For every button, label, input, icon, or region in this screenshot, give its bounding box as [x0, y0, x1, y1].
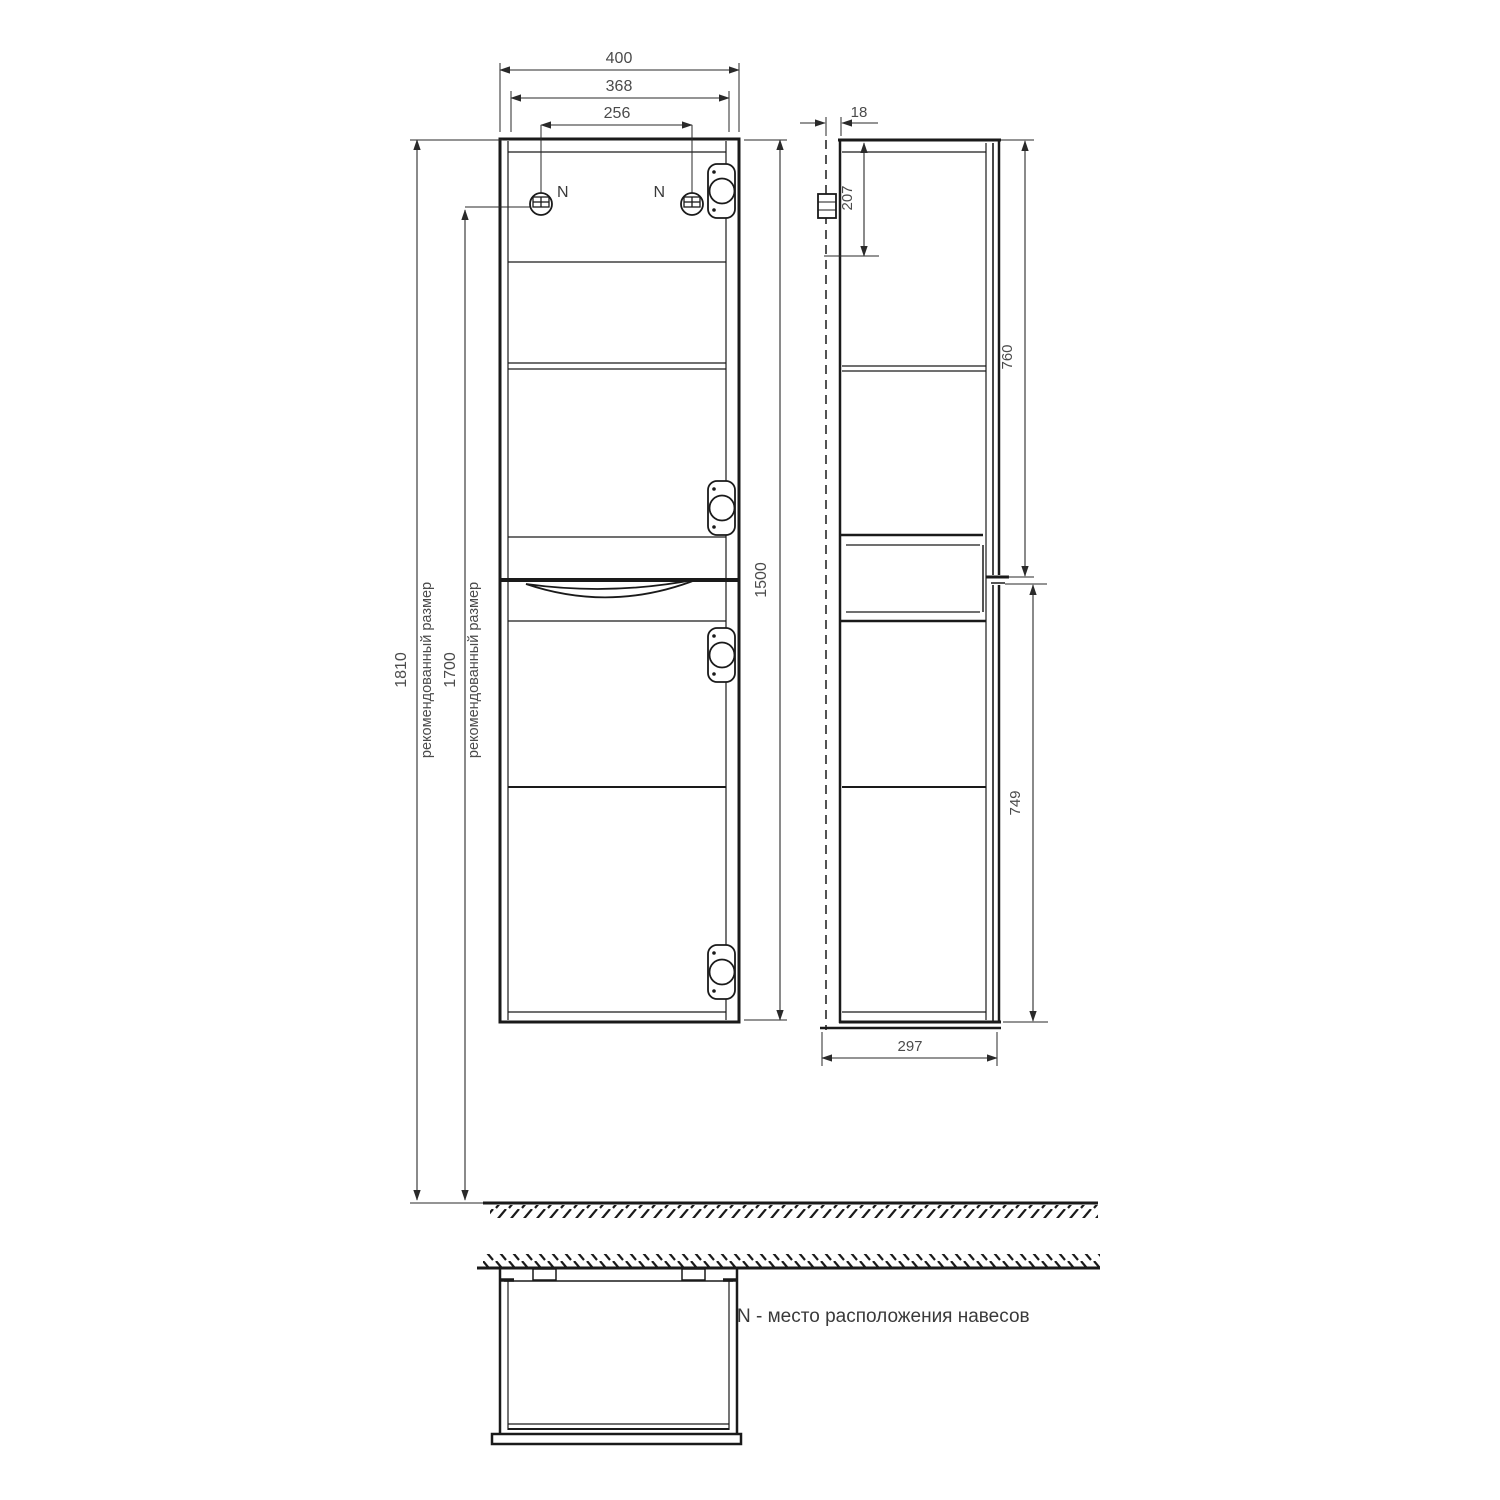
- dim-1700: 1700: [442, 652, 459, 688]
- dim-760: 760: [999, 344, 1016, 369]
- hinge-bottom: [708, 945, 735, 999]
- top-hanger-left: [533, 1269, 556, 1280]
- dim-1810-label: рекомендованный размер: [419, 582, 435, 758]
- top-view: [477, 1254, 1100, 1444]
- dim-256: 256: [604, 105, 631, 122]
- dim-1810: 1810: [393, 652, 410, 688]
- cabinet-technical-drawing: N N 400 368 256 1810 рекомендованный раз…: [0, 0, 1500, 1500]
- top-hanger-right: [682, 1269, 705, 1280]
- dim-749: 749: [1007, 790, 1024, 815]
- side-hanger-bracket: [818, 194, 836, 218]
- hanger-right-label: N: [653, 184, 665, 201]
- hinge-lower-mid: [708, 628, 735, 682]
- wall-hatch: [483, 1254, 1100, 1267]
- hinge-upper-mid: [708, 481, 735, 535]
- front-view: N N: [465, 125, 739, 1022]
- hanger-note: N - место расположения навесов: [737, 1306, 1030, 1327]
- floor-hatch: [490, 1205, 1098, 1218]
- hinge-top: [708, 164, 735, 218]
- dim-400: 400: [606, 50, 633, 67]
- side-view: [818, 140, 1009, 1030]
- dim-207: 207: [839, 185, 856, 210]
- dim-1500: 1500: [753, 562, 770, 598]
- dim-297: 297: [897, 1038, 922, 1055]
- hanger-left-label: N: [557, 184, 569, 201]
- dim-368: 368: [606, 78, 633, 95]
- side-view-dimensions: 18 207 760 749 297: [800, 104, 1048, 1066]
- top-door-front: [492, 1434, 741, 1444]
- technical-drawing-canvas: N N 400 368 256 1810 рекомендованный раз…: [0, 0, 1500, 1500]
- dim-18: 18: [851, 104, 868, 121]
- dim-1700-label: рекомендованный размер: [466, 582, 482, 758]
- floor-section: [483, 1203, 1098, 1218]
- front-view-dimensions: 400 368 256 1810 рекомендованный размер …: [393, 50, 787, 1203]
